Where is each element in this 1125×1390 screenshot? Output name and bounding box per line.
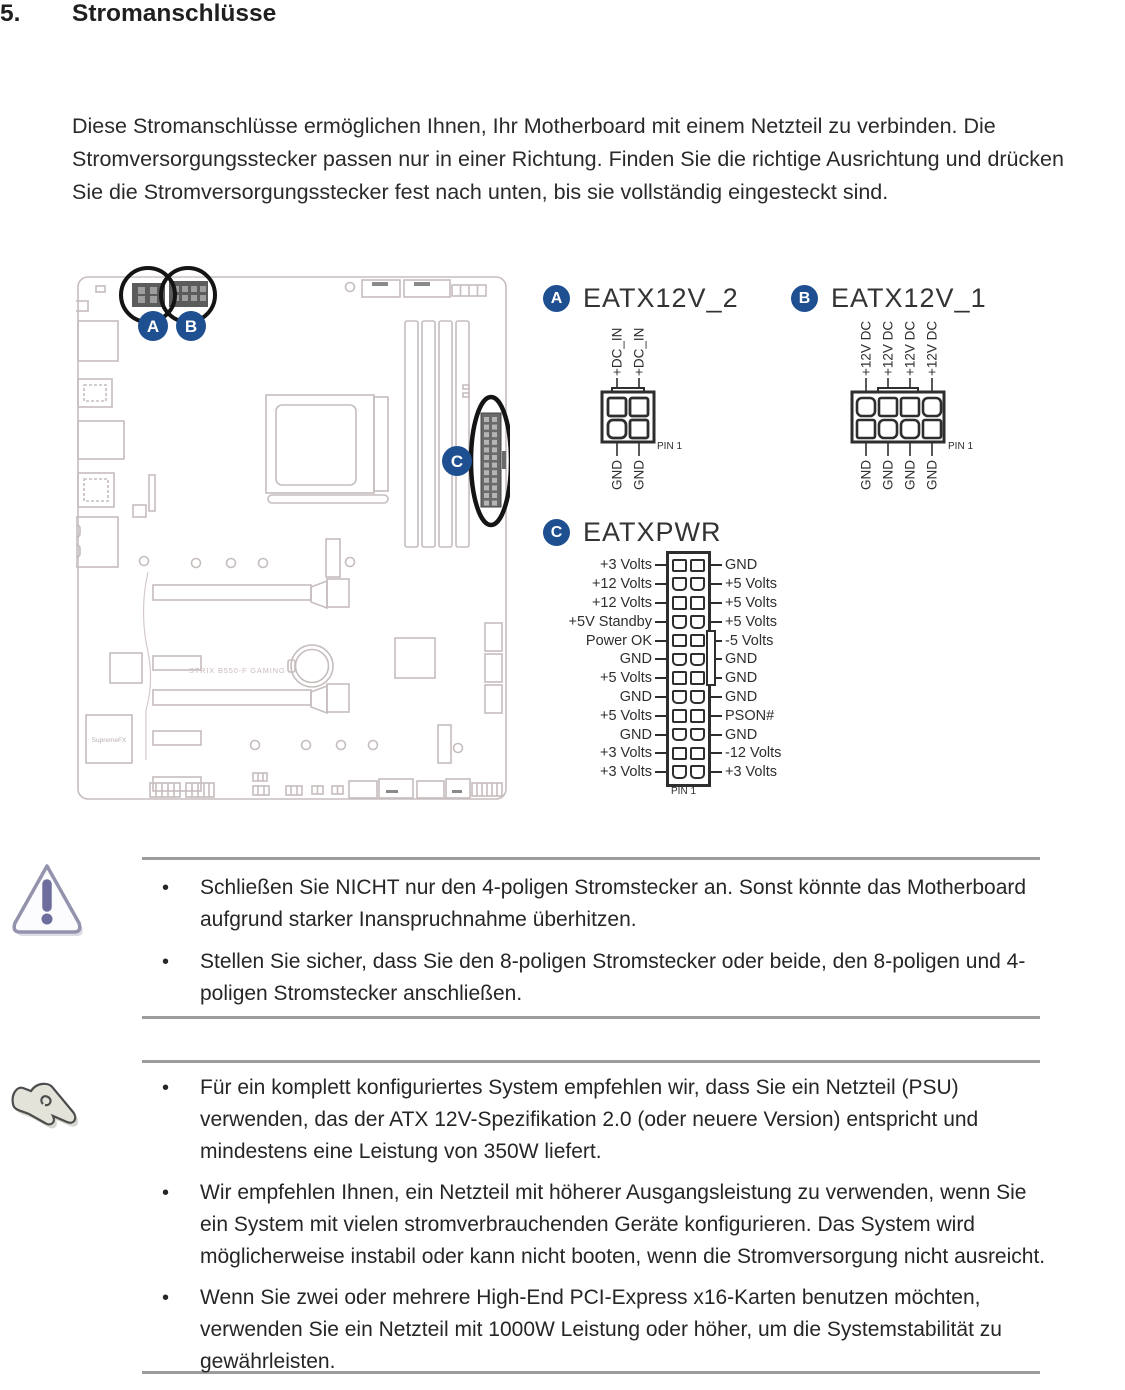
intro-paragraph: Diese Stromanschlüsse ermöglichen Ihnen,… — [72, 110, 1072, 209]
svg-text:+12V DC: +12V DC — [859, 321, 874, 376]
connector-b-header: B EATX12V_1 — [791, 283, 987, 314]
board-badge-b: B — [176, 311, 206, 341]
pin-label: +3 Volts — [711, 763, 861, 782]
svg-text:GND: GND — [610, 460, 625, 490]
bullet — [152, 946, 200, 1010]
connector-c-badge: C — [543, 519, 570, 546]
svg-text:GND: GND — [903, 460, 918, 490]
svg-text:+12V DC: +12V DC — [903, 321, 918, 376]
note-item-text: Wir empfehlen Ihnen, ein Netzteil mit hö… — [200, 1177, 1057, 1273]
pin-label: +3 Volts — [500, 556, 666, 575]
svg-text:A: A — [147, 317, 159, 336]
svg-text:+12V DC: +12V DC — [881, 321, 896, 376]
board-eatx12v-connectors — [132, 281, 208, 307]
svg-text:+12V DC: +12V DC — [925, 321, 940, 376]
pin-label: +5 Volts — [711, 575, 861, 594]
warning-icon — [8, 860, 86, 938]
pin-label: +3 Volts — [500, 744, 666, 763]
pin-label: GND — [500, 725, 666, 744]
motherboard-diagram: A B C STRIX B550-F GAMING SupremeFX — [76, 263, 510, 805]
pin-label: Power OK — [500, 631, 666, 650]
connector-c-pinout: +3 Volts +12 Volts +12 Volts +5V Standby… — [500, 551, 861, 787]
pin-label: +5 Volts — [500, 669, 666, 688]
warning-item-text: Stellen Sie sicher, dass Sie den 8-polig… — [200, 946, 1057, 1010]
warning-list: Schließen Sie NICHT nur den 4-poligen St… — [152, 872, 1057, 1010]
connector-a-header: A EATX12V_2 — [543, 283, 739, 314]
svg-text:GND: GND — [925, 460, 940, 490]
svg-text:+DC_IN: +DC_IN — [610, 328, 625, 376]
note-item: Wir empfehlen Ihnen, ein Netzteil mit hö… — [152, 1177, 1057, 1273]
svg-text:GND: GND — [859, 460, 874, 490]
connector-b-pinout: +12V DC +12V DC +12V DC +12V DC PIN 1 GN… — [812, 318, 1022, 518]
pin-label: GND — [711, 725, 861, 744]
eatxpwr-connector-body: PIN 1 — [666, 551, 711, 787]
pin-label: +12 Volts — [500, 594, 666, 613]
svg-text:GND: GND — [632, 460, 647, 490]
connector-a-badge: A — [543, 285, 570, 312]
pin-label: GND — [711, 650, 861, 669]
board-model-label: STRIX B550-F GAMING — [189, 666, 285, 675]
pin-label: PSON# — [711, 706, 861, 725]
pin-label: GND — [500, 688, 666, 707]
connector-c-header: C EATXPWR — [543, 517, 722, 548]
divider — [142, 1016, 1040, 1019]
connector-a-title: EATX12V_2 — [583, 283, 739, 314]
board-badge-a: A — [138, 311, 168, 341]
bullet — [152, 1072, 200, 1168]
board-eatxpwr-connector — [481, 413, 506, 507]
manual-page: 5. Stromanschlüsse Diese Stromanschlüsse… — [0, 0, 1125, 1390]
warning-item: Schließen Sie NICHT nur den 4-poligen St… — [152, 872, 1057, 936]
pin-label: +5 Volts — [500, 706, 666, 725]
board-supremefx-label: SupremeFX — [92, 737, 127, 744]
note-list: Für ein komplett konfiguriertes System e… — [152, 1072, 1057, 1378]
pin-label: GND — [711, 556, 861, 575]
note-item: Für ein komplett konfiguriertes System e… — [152, 1072, 1057, 1168]
bullet — [152, 1282, 200, 1378]
note-item-text: Für ein komplett konfiguriertes System e… — [200, 1072, 1057, 1168]
svg-text:GND: GND — [881, 460, 896, 490]
eatxpwr-left-labels: +3 Volts +12 Volts +12 Volts +5V Standby… — [500, 556, 666, 782]
pin-label: GND — [711, 669, 861, 688]
divider — [142, 857, 1040, 860]
pin-label: GND — [500, 650, 666, 669]
connector-latch — [706, 630, 716, 686]
svg-text:PIN 1: PIN 1 — [948, 441, 973, 452]
pin-label: +5V Standby — [500, 612, 666, 631]
warning-item-text: Schließen Sie NICHT nur den 4-poligen St… — [200, 872, 1057, 936]
note-item-text: Wenn Sie zwei oder mehrere High-End PCI-… — [200, 1282, 1057, 1378]
board-badge-c: C — [442, 446, 472, 476]
connector-b-badge: B — [791, 285, 818, 312]
pin-label: +5 Volts — [711, 594, 861, 613]
pin-label: +3 Volts — [500, 763, 666, 782]
section-heading: 5. Stromanschlüsse — [0, 0, 1100, 28]
pin-label: GND — [711, 688, 861, 707]
page-title: Stromanschlüsse — [72, 0, 276, 28]
section-number: 5. — [0, 0, 72, 28]
note-item: Wenn Sie zwei oder mehrere High-End PCI-… — [152, 1282, 1057, 1378]
pin-label: -5 Volts — [711, 631, 861, 650]
note-hand-icon — [4, 1070, 86, 1142]
pin-label: +12 Volts — [500, 575, 666, 594]
warning-item: Stellen Sie sicher, dass Sie den 8-polig… — [152, 946, 1057, 1010]
svg-text:PIN 1: PIN 1 — [657, 441, 682, 452]
pin-label: +5 Volts — [711, 612, 861, 631]
connector-a-pinout: +DC_IN +DC_IN PIN 1 GND GND — [552, 318, 712, 518]
bullet — [152, 872, 200, 936]
connector-b-title: EATX12V_1 — [831, 283, 987, 314]
svg-text:+DC_IN: +DC_IN — [632, 328, 647, 376]
connector-c-title: EATXPWR — [583, 517, 722, 548]
divider — [142, 1060, 1040, 1063]
pin1-label: PIN 1 — [671, 786, 696, 797]
eatxpwr-right-labels: GND +5 Volts +5 Volts +5 Volts -5 Volts … — [711, 556, 861, 782]
svg-text:C: C — [451, 452, 463, 471]
bullet — [152, 1177, 200, 1273]
svg-text:B: B — [185, 317, 197, 336]
pin-label: -12 Volts — [711, 744, 861, 763]
